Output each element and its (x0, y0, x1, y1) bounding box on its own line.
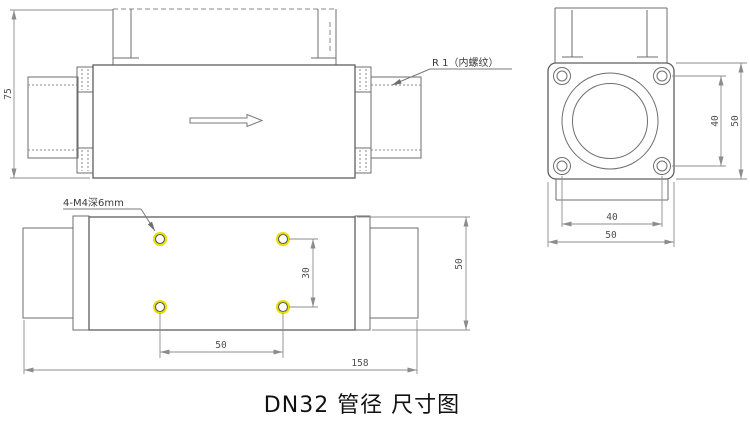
dim-50-width-label: 50 (454, 258, 465, 270)
thread-label: R 1（内螺纹） (432, 56, 499, 69)
left-pipe-end (28, 77, 78, 158)
right-connector-plan (355, 216, 370, 330)
right-pipe-plan (370, 228, 418, 318)
dim-40-bolt-h-label: 40 (606, 212, 618, 223)
end-top-connector (555, 8, 667, 63)
body-plan-outline (89, 217, 355, 330)
dim-bolts-h-40: 40 (562, 176, 662, 227)
right-pipe-end (371, 77, 421, 158)
dim-body-width-50: 50 (357, 217, 470, 330)
dim-50-flange-v-label: 50 (730, 115, 741, 127)
end-view: 40 50 40 50 (548, 8, 747, 247)
plan-view: 4-M4深6mm 30 50 158 (23, 197, 470, 374)
mounting-hole (156, 235, 165, 244)
left-connector (77, 67, 93, 173)
body-side-outline (93, 65, 355, 178)
dim-50-flange-h-label: 50 (605, 230, 617, 241)
dim-75-label: 75 (3, 88, 14, 99)
mounting-hole (279, 303, 288, 312)
dim-bolts-v-40: 40 (672, 76, 726, 166)
dim-50-holes-label: 50 (215, 340, 227, 351)
dim-30-label: 30 (301, 267, 312, 279)
dim-40-bolt-v-label: 40 (710, 115, 721, 127)
dimension-drawing: 75 R 1（内螺纹） 4- (0, 0, 750, 428)
drawing-caption: DN32 管径 尺寸图 (264, 393, 460, 418)
mounting-hole (279, 235, 288, 244)
top-housing (113, 9, 336, 65)
end-lower-body (556, 179, 668, 200)
thread-callout: R 1（内螺纹） (392, 56, 512, 85)
left-pipe-plan (23, 228, 73, 318)
right-connector (355, 67, 371, 173)
left-connector-plan (73, 216, 89, 330)
dim-158-label: 158 (351, 358, 368, 369)
drawing-canvas: 75 R 1（内螺纹） 4- (0, 0, 750, 428)
mounting-hole (156, 303, 165, 312)
holes-label: 4-M4深6mm (63, 197, 124, 209)
side-view: 75 R 1（内螺纹） (3, 9, 512, 178)
